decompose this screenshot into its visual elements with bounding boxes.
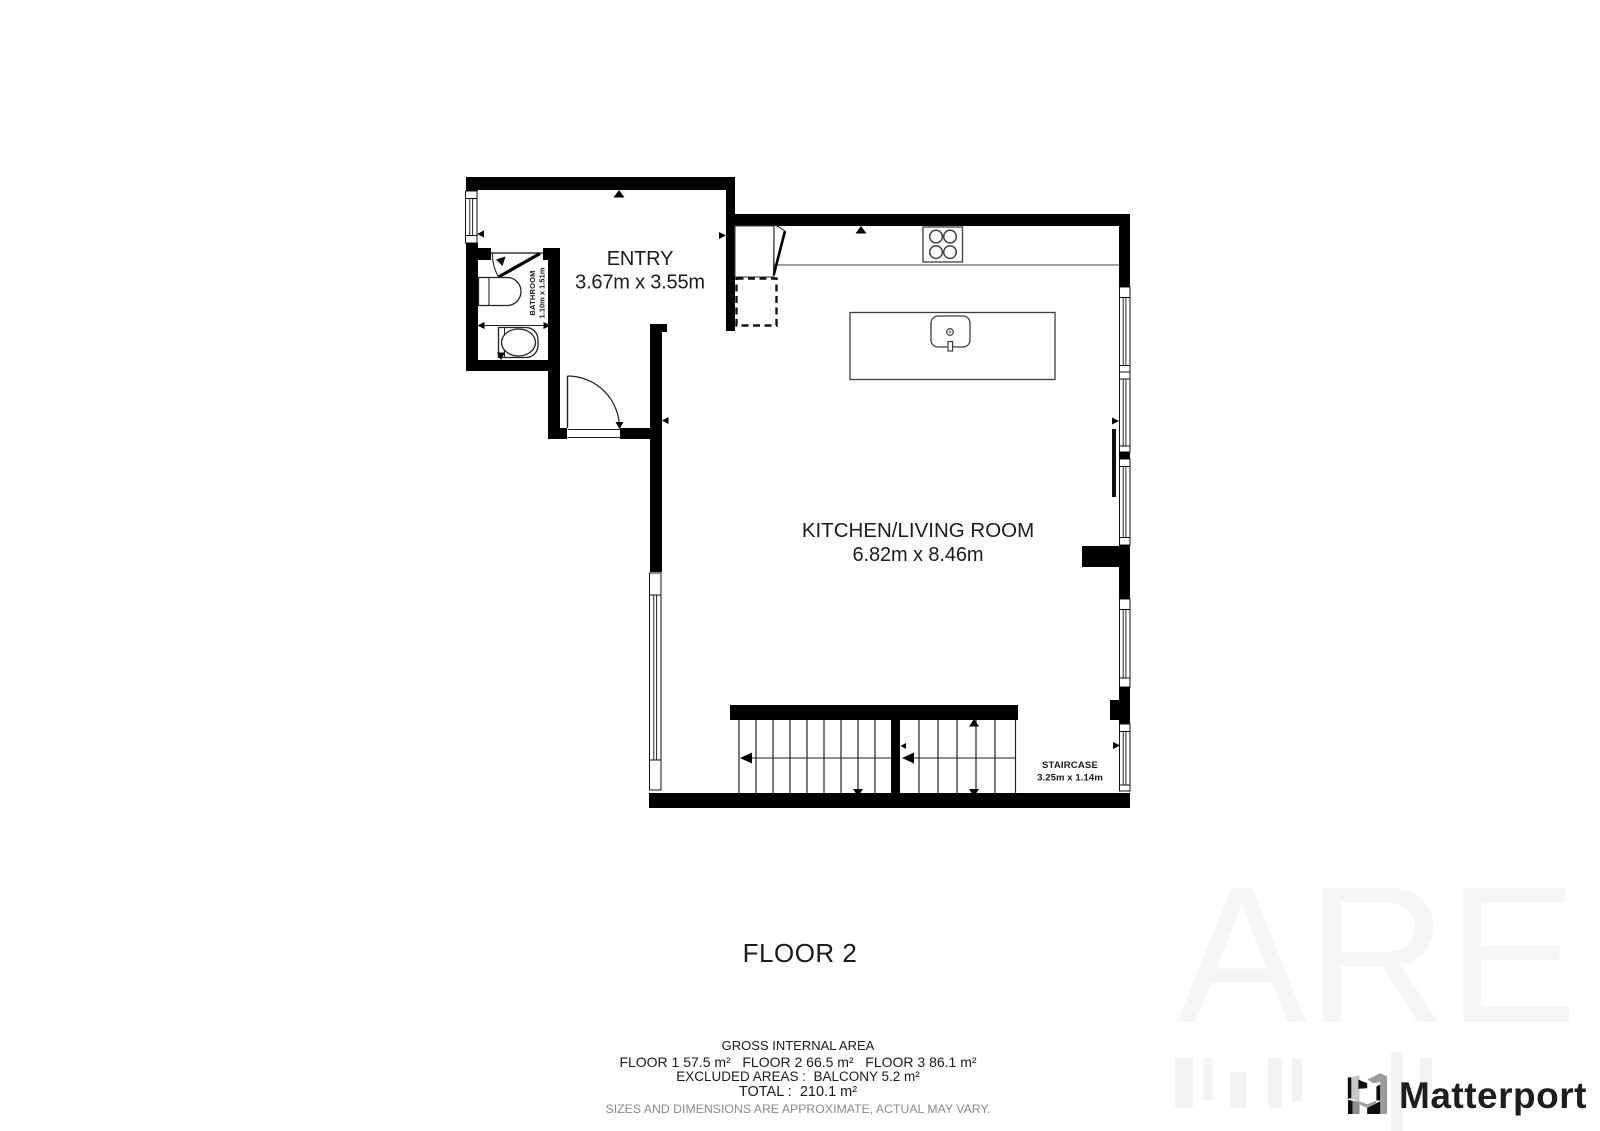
svg-text:GROSS INTERNAL AREA: GROSS INTERNAL AREA	[722, 1038, 875, 1053]
svg-text:3.25m x 1.14m: 3.25m x 1.14m	[1037, 773, 1103, 784]
svg-text:BATHROOM: BATHROOM	[528, 270, 537, 315]
svg-text:6.82m x 8.46m: 6.82m x 8.46m	[853, 544, 984, 566]
svg-text:EXCLUDED AREAS : BALCONY 5.2: EXCLUDED AREAS : BALCONY 5.2 m²	[676, 1069, 920, 1084]
svg-text:FLOOR 1 57.5 m² FLOOR 2 66.5: FLOOR 1 57.5 m² FLOOR 2 66.5 m² FLOOR 3 …	[619, 1054, 976, 1070]
svg-text:3.67m x 3.55m: 3.67m x 3.55m	[575, 272, 705, 294]
svg-text:TOTAL : 210.1 m²: TOTAL : 210.1 m²	[739, 1084, 857, 1100]
svg-text:Matterport: Matterport	[1399, 1075, 1587, 1116]
svg-text:SIZES AND DIMENSIONS ARE APPRO: SIZES AND DIMENSIONS ARE APPROXIMATE, AC…	[606, 1102, 991, 1116]
svg-text:STAIRCASE: STAIRCASE	[1042, 760, 1098, 771]
svg-text:ENTRY: ENTRY	[607, 248, 673, 270]
svg-text:ARE: ARE	[1177, 846, 1578, 1064]
svg-text:1.10m x 1.51m: 1.10m x 1.51m	[538, 267, 547, 318]
svg-text:KITCHEN/LIVING ROOM: KITCHEN/LIVING ROOM	[802, 519, 1034, 542]
svg-text:FLOOR 2: FLOOR 2	[743, 938, 858, 968]
